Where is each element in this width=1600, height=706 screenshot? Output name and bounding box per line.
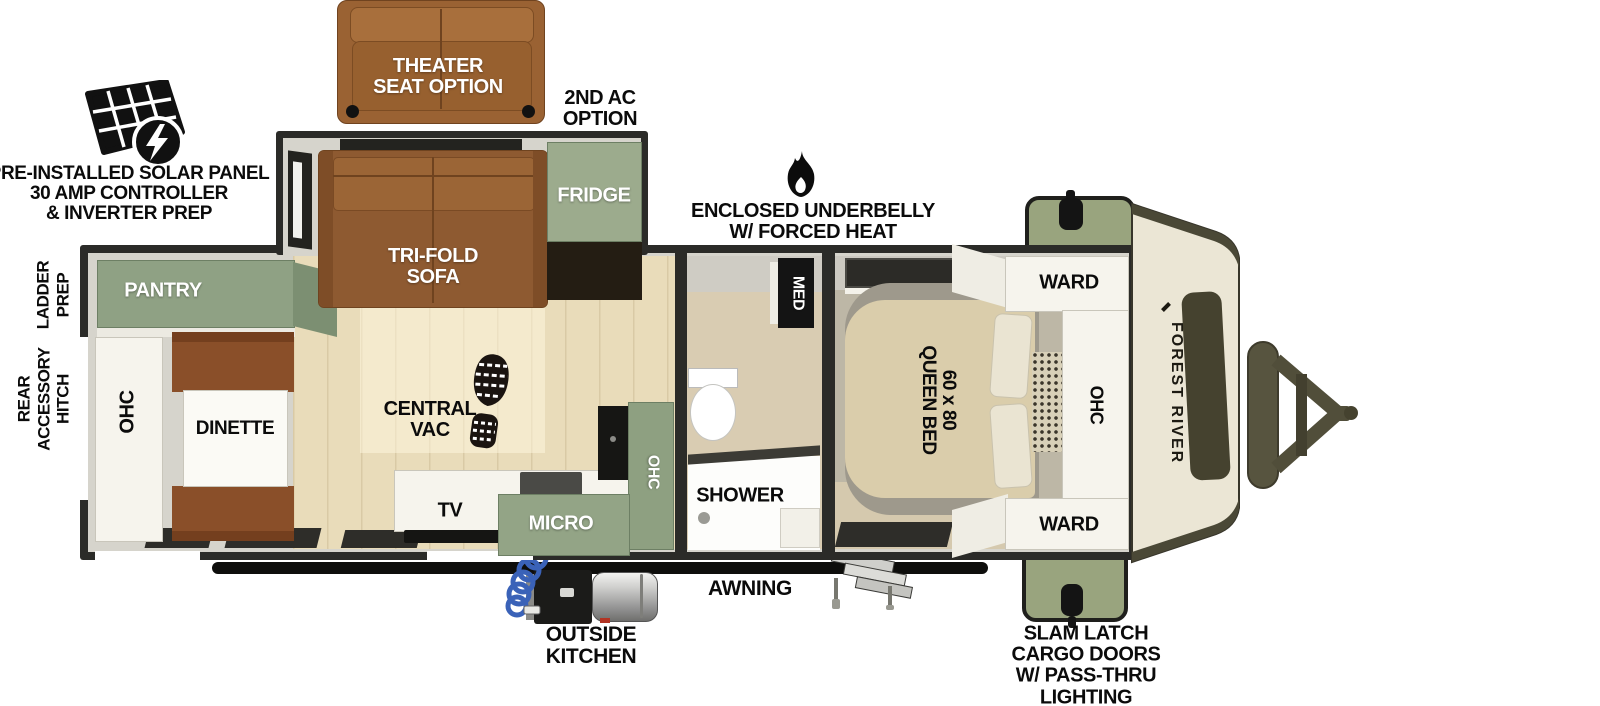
tri-fold-sofa-label: TRI-FOLD SOFA [388, 246, 478, 288]
tank-seam [640, 574, 643, 618]
outside-kitchen-label: OUTSIDE KITCHEN [546, 624, 637, 669]
tv-unit [404, 530, 502, 543]
dinette-label: DINETTE [196, 419, 274, 439]
dinette-bench-top [172, 332, 294, 392]
outside-kitchen-tank [592, 572, 658, 622]
second-ac-label: 2ND AC OPTION [563, 88, 637, 130]
shower-label: SHOWER [696, 485, 784, 506]
ladder-prep-label: LADDER PREP [33, 261, 72, 329]
seat-bolt-right [522, 105, 535, 118]
ward-bottom-label: WARD [1039, 514, 1099, 535]
theater-seat-back [350, 7, 534, 43]
theater-seat-label: THEATER SEAT OPTION [373, 56, 503, 98]
shower-head [698, 512, 710, 524]
tv-label: TV [438, 500, 463, 521]
dinette-bench-bottom [172, 486, 294, 541]
rear-accessory-hitch-label: REAR ACCESSORY HITCH [15, 347, 74, 450]
cargo-latch-top-handle [1059, 198, 1083, 230]
fridge-base [547, 242, 642, 300]
sofa-back [333, 157, 535, 211]
rear-ohc-cabinet [95, 337, 163, 542]
rear-ohc-label: OHC [117, 390, 138, 433]
slide-window-left-glass [293, 161, 302, 238]
med-cabinet-edge [770, 262, 778, 324]
awning-label: AWNING [708, 578, 792, 600]
entry-steps [824, 552, 920, 610]
front-cap-brand: FOREST RIVER [1168, 322, 1185, 464]
sofa-armrest-right [533, 151, 547, 307]
queen-bed-label: 60 x 80 QUEEN BED [918, 345, 958, 454]
toilet-bowl [690, 384, 736, 441]
flame-icon [782, 150, 822, 200]
cooktop-knob [610, 436, 616, 442]
bottom-wall-window-1 [95, 551, 200, 560]
entry-door-mat [835, 522, 953, 547]
front-cap: FOREST RIVER [1128, 196, 1266, 570]
pantry-label: PANTRY [124, 280, 202, 301]
ward-top-label: WARD [1039, 272, 1099, 293]
griddle-knob [560, 588, 574, 597]
bed-pillow-2 [989, 403, 1033, 489]
solar-prep-label: PRE-INSTALLED SOLAR PANEL 30 AMP CONTROL… [0, 164, 269, 224]
bath-wall-right [822, 253, 835, 552]
seat-bolt-left [346, 105, 359, 118]
fridge-label: FRIDGE [557, 185, 630, 206]
rv-floorplan: PRE-INSTALLED SOLAR PANEL 30 AMP CONTROL… [0, 0, 1600, 706]
bath-vanity [780, 508, 820, 548]
micro-label: MICRO [529, 513, 594, 534]
rear-wall-window [80, 337, 88, 500]
sofa-armrest-left [319, 151, 333, 307]
med-label: MED [789, 276, 806, 310]
slam-latch-label: SLAM LATCH CARGO DOORS W/ PASS-THRU LIGH… [1012, 624, 1161, 706]
bedroom-ohc-label: OHC [1086, 386, 1105, 425]
bath-wall-left [675, 253, 687, 552]
cooktop [598, 406, 628, 480]
bed-runner [1032, 352, 1062, 452]
solar-panel-icon [66, 80, 190, 172]
underbelly-label: ENCLOSED UNDERBELLY W/ FORCED HEAT [691, 201, 935, 243]
cargo-latch-bottom-handle [1061, 584, 1083, 616]
bed-pillow-1 [989, 313, 1033, 399]
kitchen-ohc-label: OHC [644, 455, 661, 489]
